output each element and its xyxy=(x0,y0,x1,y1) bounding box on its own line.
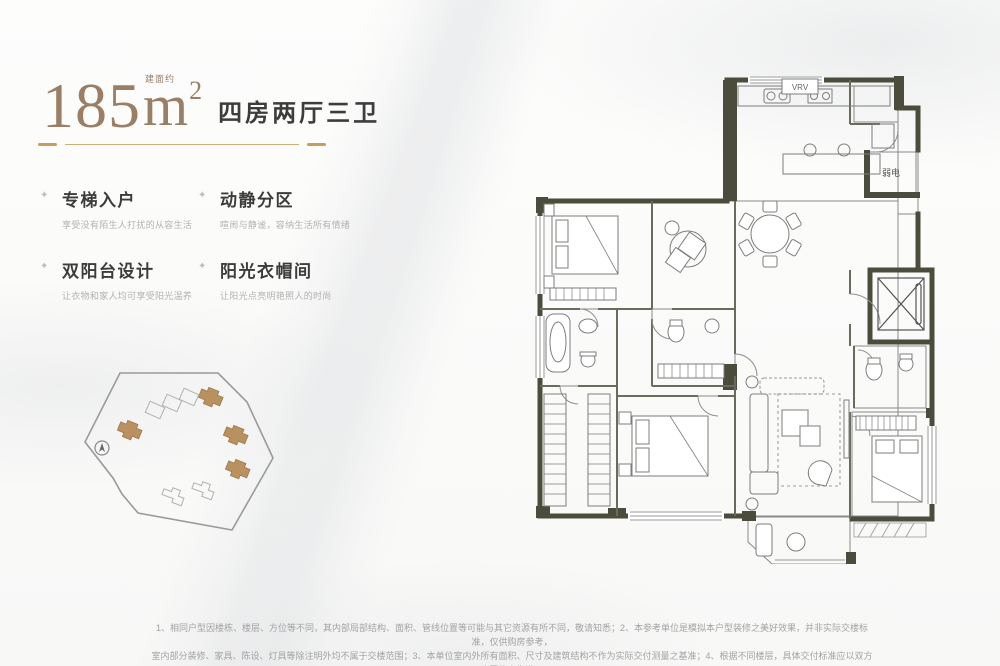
sparkle-icon: ✦ xyxy=(40,190,48,201)
study-armchair-icon xyxy=(665,221,706,273)
feature-item-private-elevator: ✦ 专梯入户 享受没有陌生人打扰的从容生活 xyxy=(40,186,198,231)
feature-desc: 让衣物和家人均可享受阳光温养 xyxy=(62,289,198,302)
area-value: 185 xyxy=(42,74,141,138)
feature-desc: 喧闹与静谧，容纳生活所有情绪 xyxy=(220,218,356,231)
kitchen-counter xyxy=(738,86,894,174)
feature-desc: 享受没有陌生人打扰的从容生活 xyxy=(62,218,198,231)
page: 185 建面约 m 2 四房两厅三卫 ✦ 专梯入户 享受没有陌生人打扰的从容生活… xyxy=(0,0,1000,666)
sparkle-icon: ✦ xyxy=(198,190,206,201)
sparkle-icon: ✦ xyxy=(40,261,48,272)
feature-desc: 让阳光点亮明艳照人的时尚 xyxy=(220,289,356,302)
disclaimer: 1、相同户型因楼栋、楼层、方位等不同，其内部局部结构、面积、管线位置等可能与其它… xyxy=(150,621,874,666)
feature-title: 双阳台设计 xyxy=(62,257,198,282)
site-boundary xyxy=(85,373,273,530)
elevator-icon xyxy=(878,278,924,330)
area-superscript: 2 xyxy=(189,78,202,104)
feature-list: ✦ 专梯入户 享受没有陌生人打扰的从容生活 ✦ 动静分区 喧闹与静谧，容纳生活所… xyxy=(40,186,360,302)
area-unit-wrap: 建面约 m xyxy=(143,74,188,138)
highlighted-buildings xyxy=(116,385,252,481)
divider-dash-left xyxy=(38,143,57,146)
sparkle-icon: ✦ xyxy=(198,261,206,272)
cloakroom-wardrobes xyxy=(544,394,610,506)
small-bath-fixtures xyxy=(658,319,724,378)
balcony-furniture xyxy=(756,524,805,556)
area-prefix-label: 建面约 xyxy=(145,72,175,85)
disclaimer-line-1: 1、相同户型因楼栋、楼层、方位等不同，其内部局部结构、面积、管线位置等可能与其它… xyxy=(150,621,874,649)
floor-plan: VRV 弱电 xyxy=(520,64,940,564)
bathroom3-fixtures xyxy=(866,354,913,380)
bedroom1-bed-icon xyxy=(544,204,618,300)
compass-icon xyxy=(95,441,109,455)
feature-item-zoning: ✦ 动静分区 喧闹与静谧，容纳生活所有情绪 xyxy=(198,186,356,231)
feature-title: 动静分区 xyxy=(220,186,356,211)
vrv-unit: VRV xyxy=(782,79,818,94)
site-plan xyxy=(70,368,290,558)
ledge-hatch xyxy=(854,523,926,537)
layout-label: 四房两厅三卫 xyxy=(218,93,380,128)
divider-line xyxy=(65,144,299,145)
disclaimer-line-2: 室内部分装修、家具、陈设、灯具等除注明外均不属于交楼范围；3、本单位室内外所有面… xyxy=(150,649,874,666)
outline-buildings xyxy=(145,388,216,505)
vrv-label: VRV xyxy=(792,83,809,92)
weak-electric-label: 弱电 xyxy=(882,167,900,178)
feature-item-sunny-cloakroom: ✦ 阳光衣帽间 让阳光点亮明艳照人的时尚 xyxy=(198,257,356,302)
bedroom2-bed-icon xyxy=(619,412,708,476)
divider-dash-right xyxy=(307,143,326,146)
page-title: 185 建面约 m 2 四房两厅三卫 xyxy=(42,74,380,138)
dining-table-icon xyxy=(738,201,802,267)
living-room-furniture xyxy=(746,376,849,510)
feature-title: 专梯入户 xyxy=(62,186,198,211)
gold-divider xyxy=(38,143,326,146)
area-figure: 185 建面约 m 2 xyxy=(42,74,202,138)
bedroom3-bed-icon xyxy=(856,416,922,502)
feature-item-double-balcony: ✦ 双阳台设计 让衣物和家人均可享受阳光温养 xyxy=(40,257,198,302)
feature-title: 阳光衣帽间 xyxy=(220,257,356,282)
master-bath-fixtures xyxy=(546,314,597,372)
